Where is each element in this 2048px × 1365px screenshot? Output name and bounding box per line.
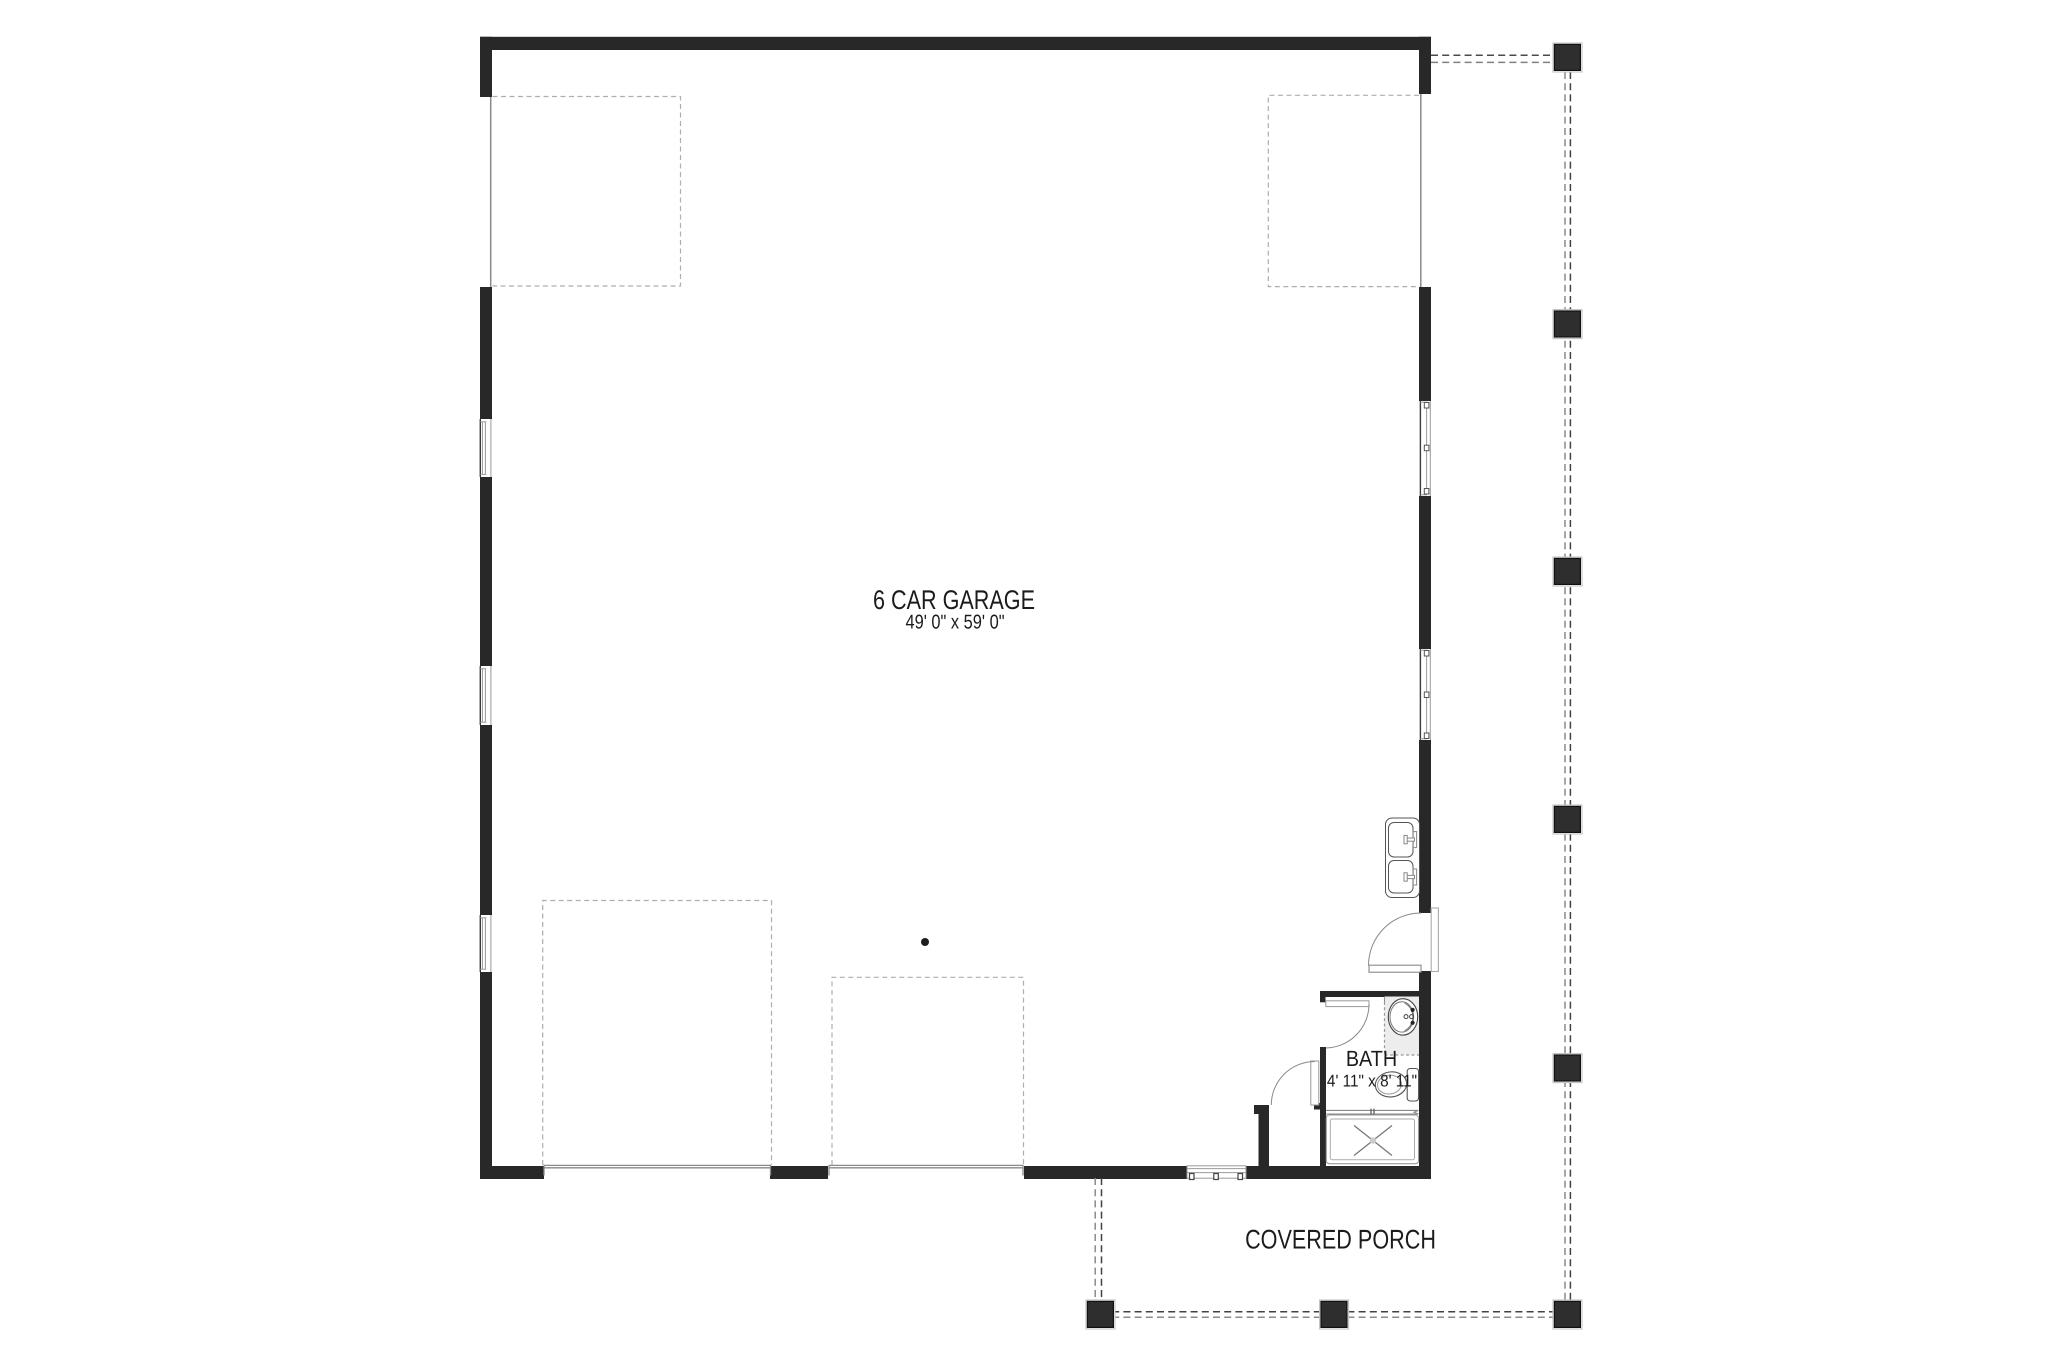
- svg-text:6 CAR GARAGE: 6 CAR GARAGE: [873, 585, 1035, 615]
- svg-text:BATH: BATH: [1346, 1046, 1397, 1071]
- svg-text:COVERED PORCH: COVERED PORCH: [1245, 1225, 1436, 1255]
- svg-text:49' 0" x 59' 0": 49' 0" x 59' 0": [905, 612, 1004, 634]
- svg-text:4' 11" x 8' 11": 4' 11" x 8' 11": [1327, 1072, 1417, 1091]
